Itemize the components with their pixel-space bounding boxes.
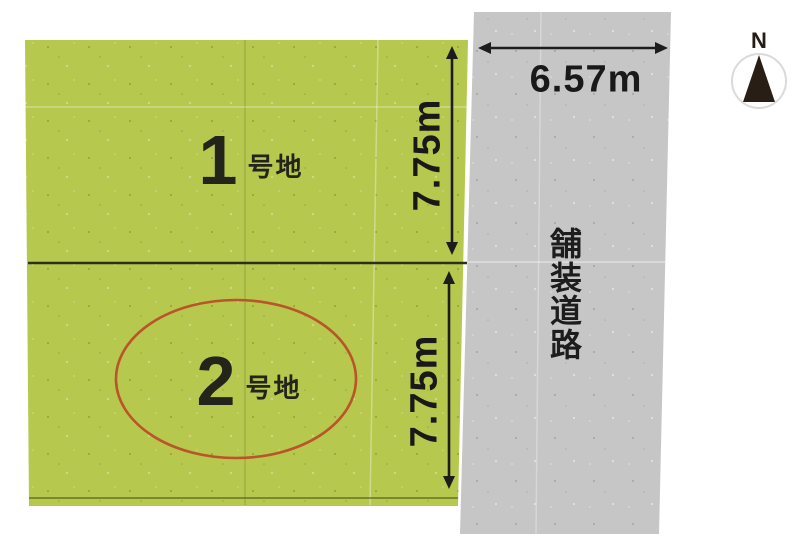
plot-2-label: 2 号地	[197, 346, 302, 416]
north-label: N	[751, 28, 767, 54]
road-width-dimension-label: 6.57m	[530, 59, 643, 102]
plot-2-suffix: 号地	[245, 368, 301, 405]
road-name-label: 舗装道路	[548, 228, 584, 362]
plot-1-suffix: 号地	[247, 147, 303, 184]
land-area-texture	[25, 40, 468, 506]
plot-2-depth-dimension-label: 7.75m	[404, 335, 447, 448]
plot-1-depth-dimension-label: 7.75m	[407, 99, 450, 212]
north-arrow-icon	[743, 55, 775, 102]
plot-2-number: 2	[197, 346, 236, 416]
plot-1-label: 1 号地	[199, 125, 304, 195]
site-plan: 1 号地 2 号地 7.75m 7.75m 6.57m 舗装道路 N	[0, 0, 800, 554]
plot-1-number: 1	[199, 125, 238, 195]
site-plan-canvas	[0, 0, 800, 554]
